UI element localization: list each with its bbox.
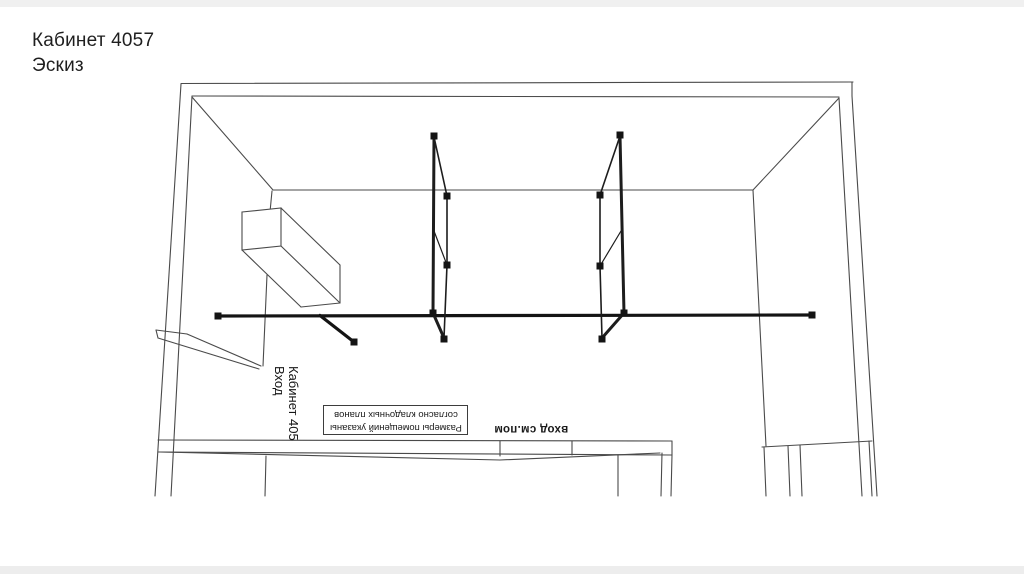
floor-slab-band (158, 440, 872, 496)
curtain-rod (218, 315, 812, 342)
entry-label: Кабинет 405 Вход (272, 366, 300, 441)
dimension-note-line1: Размеры помещений указаны (330, 420, 462, 433)
hanging-frame-right (600, 136, 624, 338)
dimension-note-box: Размеры помещений указаны согласно кладо… (323, 405, 468, 435)
dimension-note-text: Размеры помещений указаны согласно кладо… (330, 408, 462, 433)
dimension-note-line2: согласно кладочных планов (330, 408, 462, 421)
entry-label-room: Кабинет 405 (286, 366, 300, 441)
mounting-nodes (215, 132, 816, 346)
rod-diagonal-tie (320, 316, 354, 343)
slide-canvas: Кабинет 4057 Эскиз (0, 0, 1024, 574)
entry-label-entrance: Вход (272, 366, 286, 441)
ceiling-duct-box (242, 208, 340, 307)
room-sketch-svg (0, 0, 1024, 574)
door-wedge (156, 330, 261, 369)
entrance-note: вход см.пом (494, 423, 568, 435)
hanging-frame-left (433, 137, 447, 338)
